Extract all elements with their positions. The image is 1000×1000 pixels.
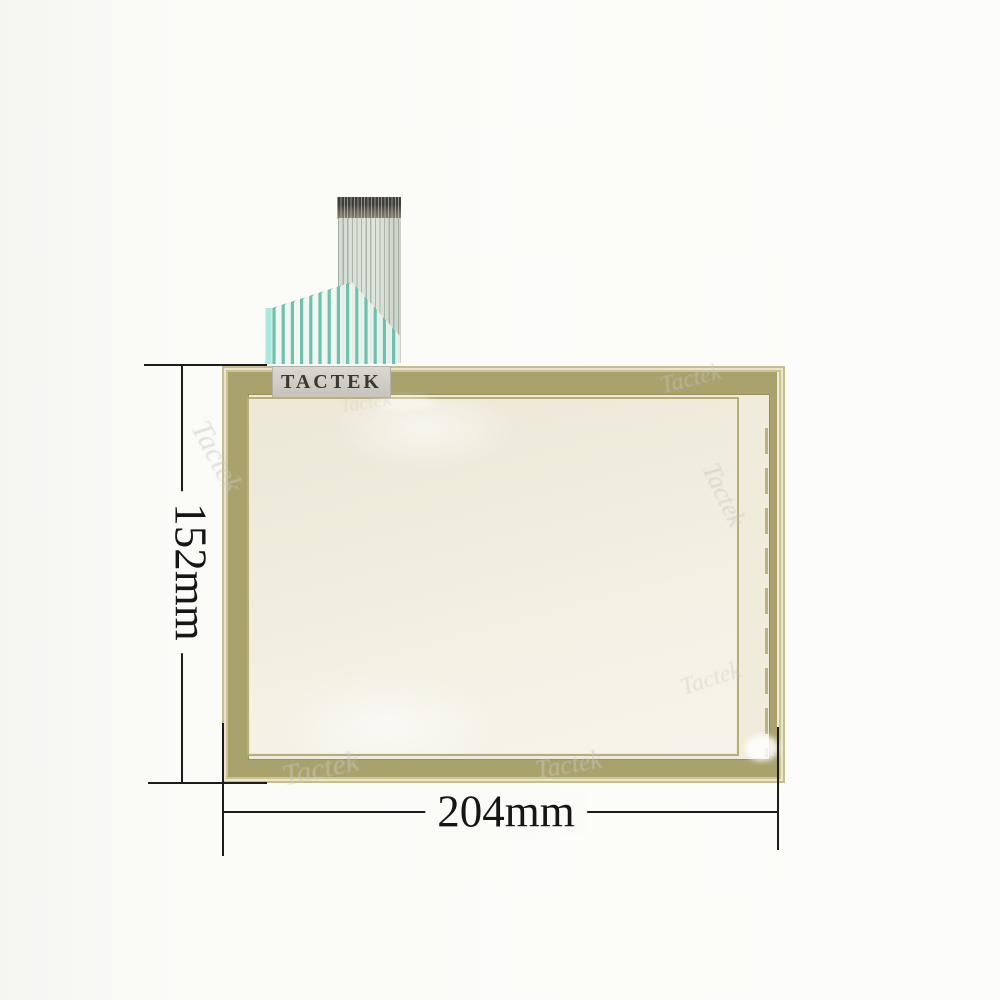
touch-glass bbox=[250, 400, 736, 753]
right-electrode-trace bbox=[765, 428, 768, 757]
width-dimension-tick-left bbox=[222, 723, 224, 856]
reflection-blob bbox=[374, 396, 434, 410]
height-dimension-label: 152mm bbox=[166, 491, 213, 653]
width-dimension-label: 204mm bbox=[425, 788, 587, 835]
width-dimension-tick-right bbox=[777, 727, 779, 850]
touch-panel-frame bbox=[222, 366, 785, 783]
height-dimension-tick-top bbox=[144, 364, 267, 366]
ribbon-fan-cyan-edge bbox=[266, 308, 272, 364]
ribbon-connector bbox=[337, 197, 401, 219]
reflection-blob bbox=[745, 735, 779, 761]
height-dimension-tick-bottom bbox=[148, 782, 267, 784]
ribbon-fan-backdrop bbox=[266, 282, 400, 364]
ribbon-fan-traces bbox=[264, 280, 404, 364]
product-photo: Tactek Tactek Tactek Tactek Tactek Tacte… bbox=[0, 0, 1000, 1000]
brand-label: TACTEK bbox=[272, 366, 391, 398]
